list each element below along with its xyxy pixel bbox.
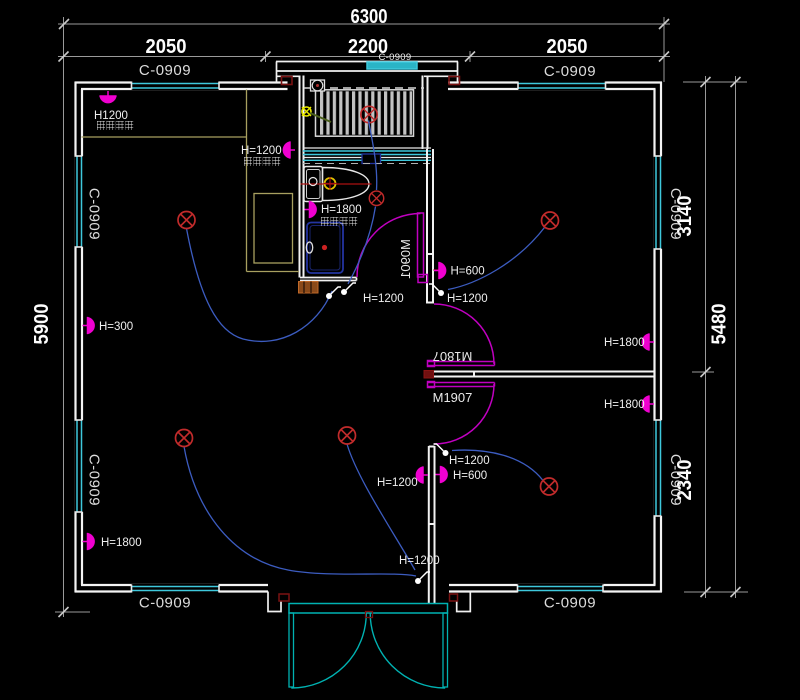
svg-text:C-0909: C-0909	[86, 188, 103, 240]
svg-text:H=1200: H=1200	[399, 555, 440, 567]
svg-text:H=1200: H=1200	[449, 455, 490, 467]
svg-text:H=1800: H=1800	[604, 399, 645, 411]
svg-text:C-0909: C-0909	[667, 454, 684, 506]
svg-text:H=600: H=600	[451, 266, 485, 278]
svg-text:H=1800: H=1800	[321, 204, 362, 216]
svg-text:5480: 5480	[709, 304, 731, 345]
svg-text:2050: 2050	[146, 36, 187, 58]
svg-text:H=1200: H=1200	[241, 145, 282, 157]
svg-text:M1807: M1807	[433, 349, 473, 364]
svg-text:H=1800: H=1800	[604, 337, 645, 349]
svg-text:H1200: H1200	[94, 110, 128, 122]
svg-text:C-0909: C-0909	[139, 595, 191, 612]
svg-text:H=1200: H=1200	[447, 293, 488, 305]
svg-text:M0901: M0901	[398, 239, 413, 279]
svg-text:2050: 2050	[547, 36, 588, 58]
svg-text:H=1200: H=1200	[363, 293, 404, 305]
svg-text:H=1800: H=1800	[101, 537, 142, 549]
svg-text:C-0909: C-0909	[667, 188, 684, 240]
svg-text:6300: 6300	[351, 6, 388, 28]
svg-text:C-0909: C-0909	[139, 62, 191, 79]
svg-text:H=300: H=300	[99, 321, 133, 333]
svg-text:5900: 5900	[31, 304, 53, 345]
svg-text:M1907: M1907	[433, 390, 473, 405]
svg-text:C-0909: C-0909	[379, 52, 412, 63]
svg-text:C-0909: C-0909	[544, 63, 596, 80]
svg-text:H=600: H=600	[453, 470, 487, 482]
svg-text:C-0909: C-0909	[86, 454, 103, 506]
svg-text:C-0909: C-0909	[544, 595, 596, 612]
svg-text:H=1200: H=1200	[377, 477, 418, 489]
